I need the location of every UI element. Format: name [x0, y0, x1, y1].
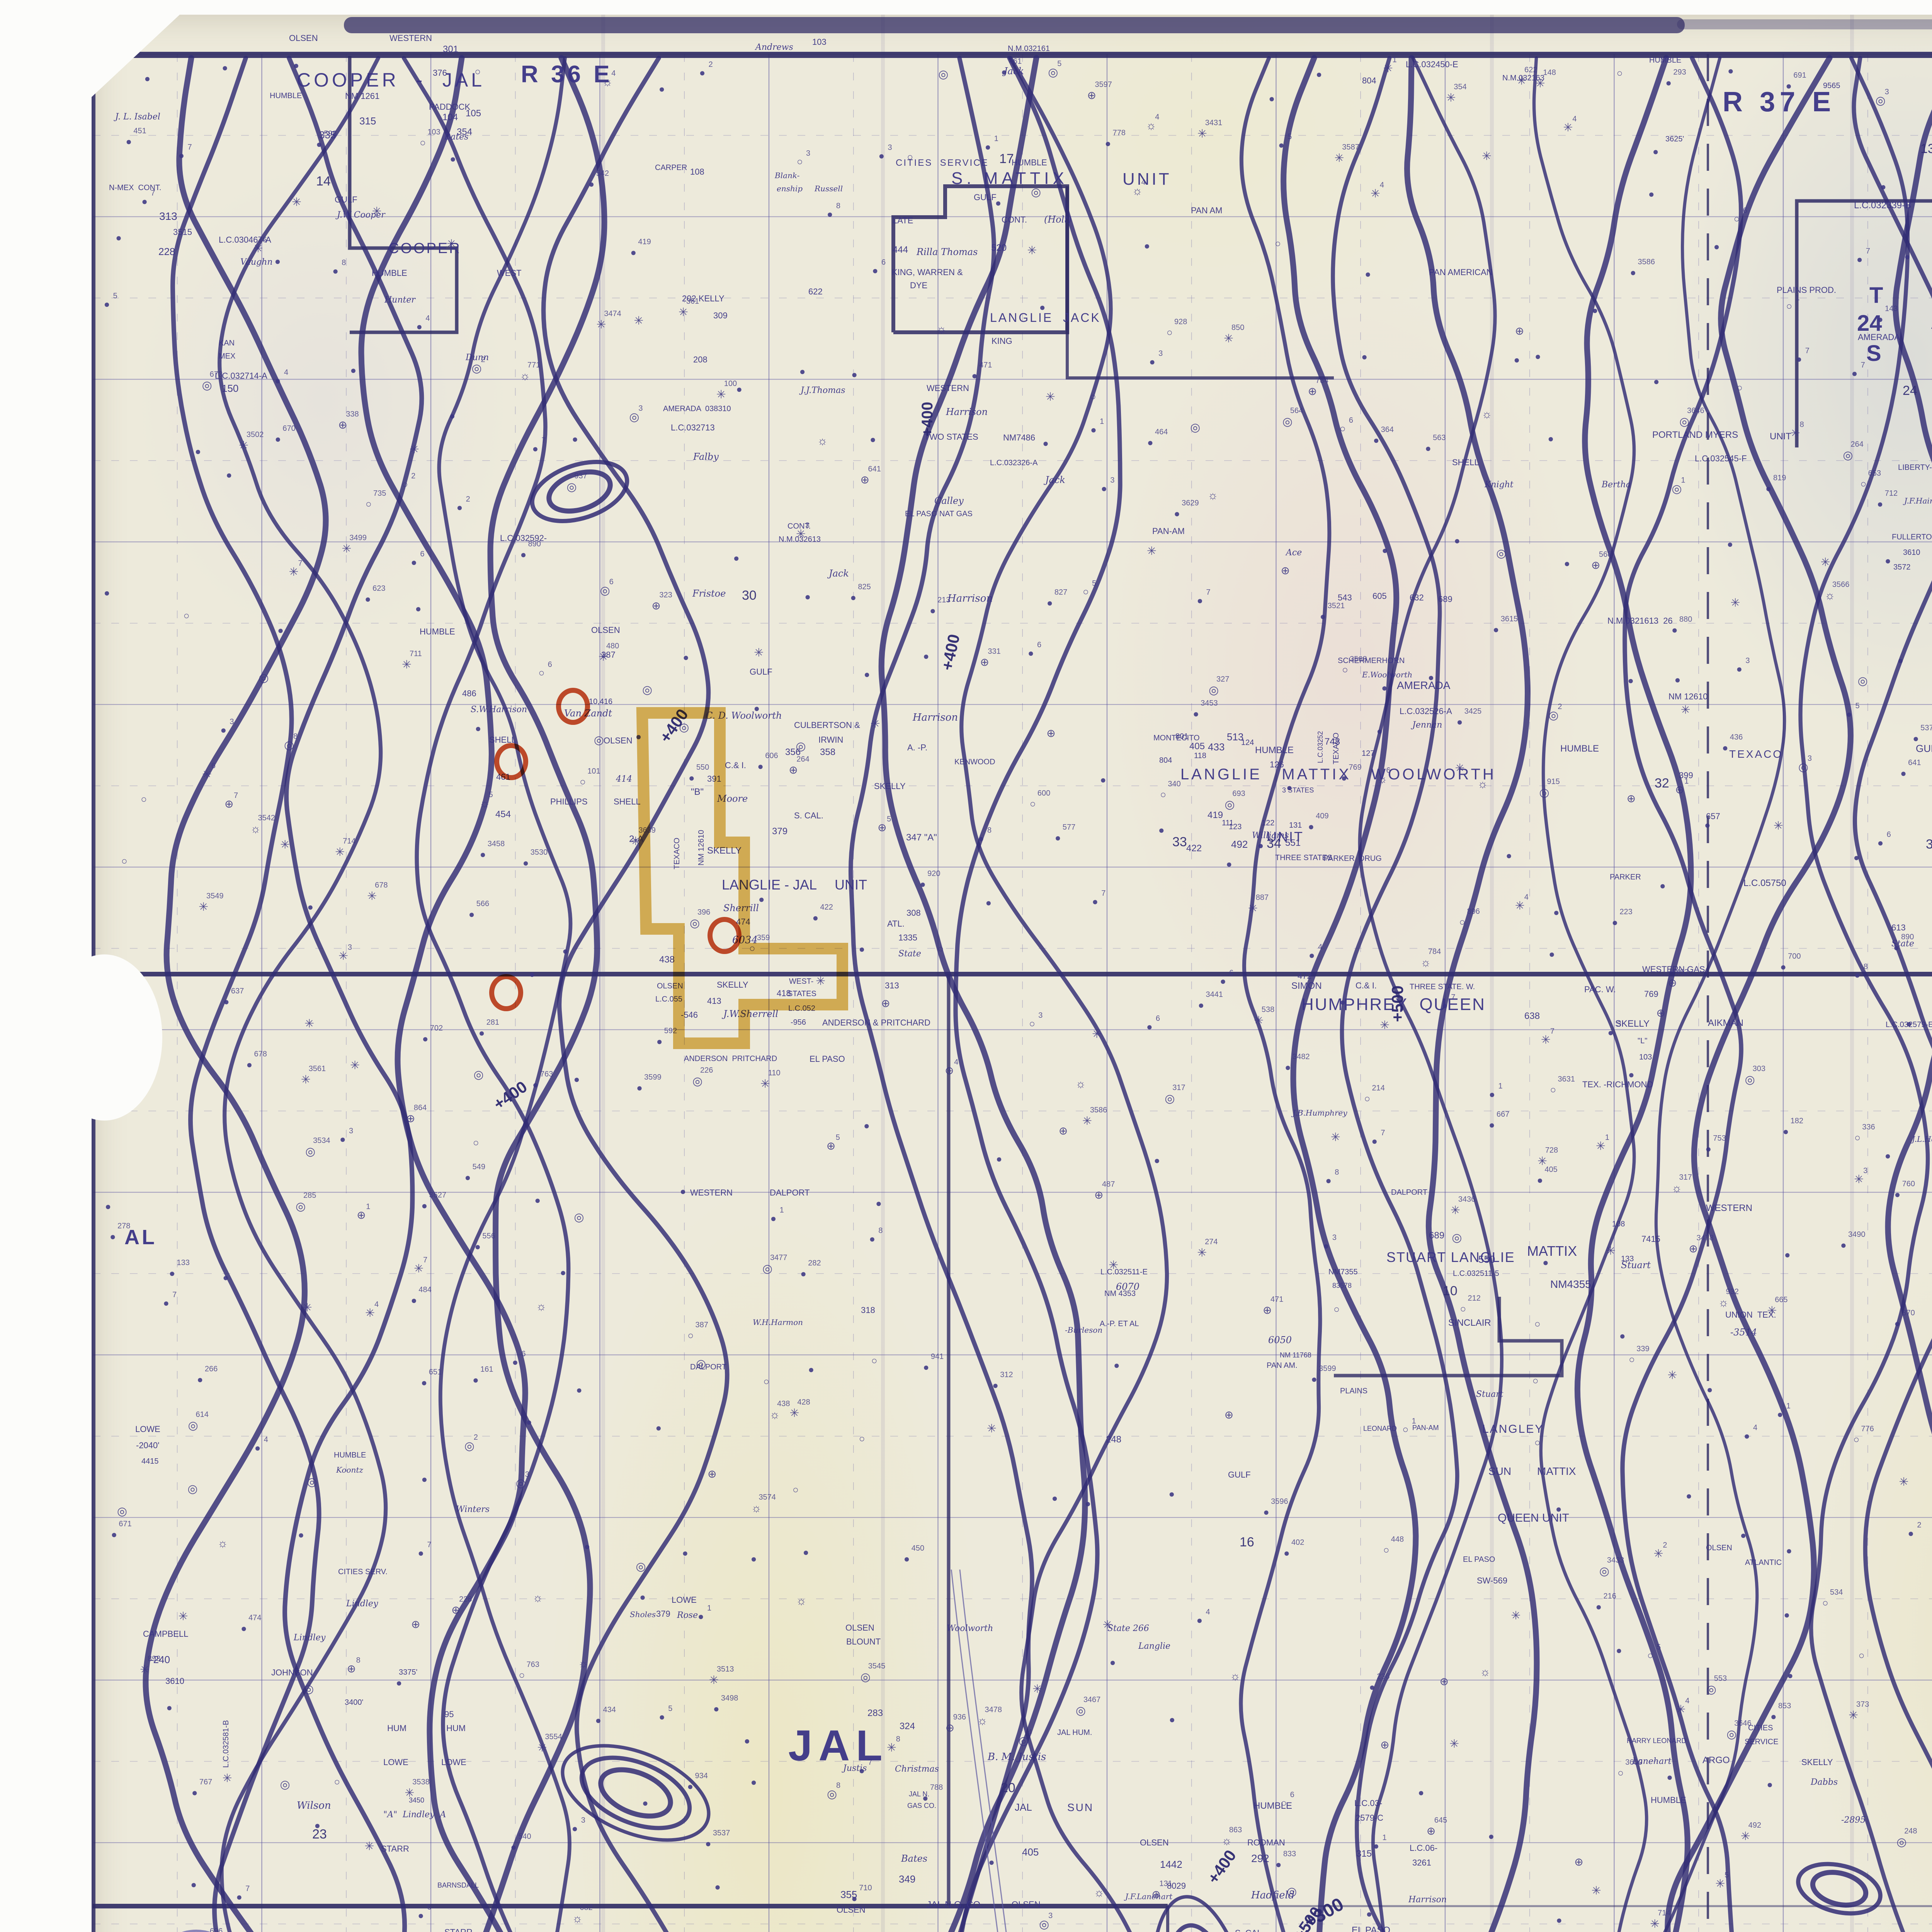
red-circle-annotation	[494, 743, 528, 780]
aapg-member-seal: AMERICAN ASSOCIATION OF PETROLEUM GEOLOG…	[136, 1925, 266, 1932]
unit-highlight-layer	[0, 0, 1932, 1932]
page-margin-top	[0, 0, 1932, 15]
highlighted-unit-boundary	[642, 713, 842, 1043]
scanned-oil-map-page: ●●451●7●●5●○○●●278◎●671✳893●7◎673●○✳6✳35…	[0, 0, 1932, 1932]
red-circle-annotation	[556, 688, 590, 725]
red-circle-annotation	[707, 917, 742, 954]
red-circle-annotation	[489, 974, 523, 1011]
page-margin-left	[0, 0, 92, 1932]
